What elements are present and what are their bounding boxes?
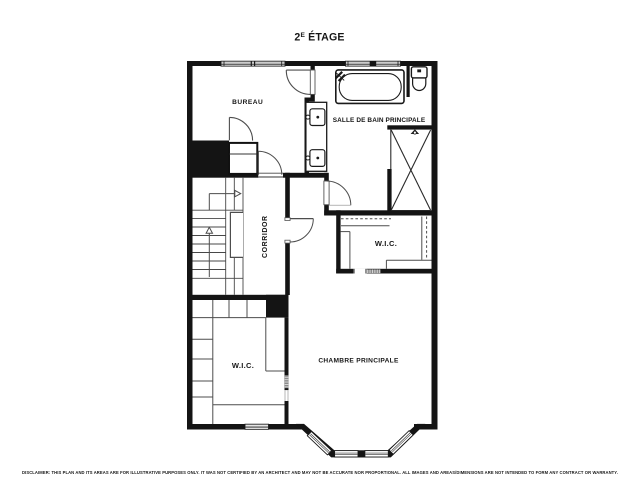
svg-text:W.I.C.: W.I.C. bbox=[375, 239, 397, 248]
svg-text:W.I.C.: W.I.C. bbox=[232, 361, 254, 370]
svg-text:BUREAU: BUREAU bbox=[232, 99, 263, 106]
svg-text:SALLE DE BAIN PRINCIPALE: SALLE DE BAIN PRINCIPALE bbox=[333, 117, 426, 124]
svg-text:DISCLAIMER: THIS PLAN AND ITS: DISCLAIMER: THIS PLAN AND ITS AREAS ARE … bbox=[22, 470, 618, 475]
svg-text:CORRIDOR: CORRIDOR bbox=[262, 215, 269, 258]
svg-text:2E ÉTAGE: 2E ÉTAGE bbox=[294, 30, 344, 43]
svg-text:CHAMBRE PRINCIPALE: CHAMBRE PRINCIPALE bbox=[318, 357, 399, 364]
